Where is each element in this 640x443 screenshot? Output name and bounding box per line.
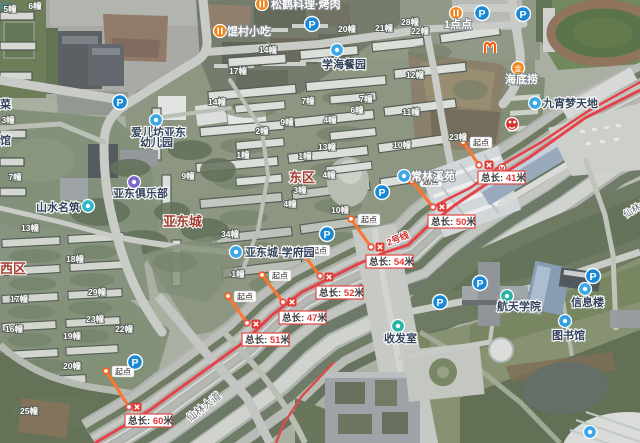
svg-text:29幢: 29幢 xyxy=(88,287,106,297)
svg-text:9幢: 9幢 xyxy=(181,171,195,181)
svg-text:金: 金 xyxy=(514,64,522,74)
svg-text:信息楼: 信息楼 xyxy=(571,295,604,309)
svg-text:航天学院: 航天学院 xyxy=(497,299,541,313)
svg-text:亚东城: 亚东城 xyxy=(163,214,202,229)
svg-text:10幢: 10幢 xyxy=(393,140,411,150)
svg-text:10幢: 10幢 xyxy=(331,205,349,215)
svg-text:23幢: 23幢 xyxy=(449,132,467,142)
svg-text:总长: 47米: 总长: 47米 xyxy=(282,312,327,324)
svg-text:P: P xyxy=(436,297,443,309)
svg-text:西区: 西区 xyxy=(0,261,26,276)
svg-text:7幢: 7幢 xyxy=(359,94,373,104)
svg-text:亚东俱乐部: 亚东俱乐部 xyxy=(113,186,168,200)
svg-text:菜: 菜 xyxy=(0,97,12,111)
svg-text:学海餐园: 学海餐园 xyxy=(322,57,366,71)
svg-text:14幢: 14幢 xyxy=(259,45,277,55)
svg-text:总长: 51米: 总长: 51米 xyxy=(245,334,290,346)
svg-text:6幢: 6幢 xyxy=(28,1,42,11)
svg-text:17幢: 17幢 xyxy=(10,294,28,304)
svg-text:1幢: 1幢 xyxy=(298,151,312,161)
svg-text:9幢: 9幢 xyxy=(280,117,294,127)
svg-text:4幢: 4幢 xyxy=(323,115,337,125)
svg-text:4幢: 4幢 xyxy=(283,199,297,209)
svg-text:20幢: 20幢 xyxy=(338,24,356,34)
svg-text:总长: 60米: 总长: 60米 xyxy=(128,415,173,427)
svg-text:起点: 起点 xyxy=(237,293,253,302)
svg-text:20幢: 20幢 xyxy=(63,361,81,371)
svg-text:P: P xyxy=(476,278,483,290)
svg-text:3幢: 3幢 xyxy=(293,185,307,195)
svg-text:12幢: 12幢 xyxy=(406,70,424,80)
svg-text:总长: 50米: 总长: 50米 xyxy=(431,216,476,228)
svg-text:海底捞: 海底捞 xyxy=(505,72,538,86)
svg-text:馄村小吃: 馄村小吃 xyxy=(226,24,271,38)
svg-text:P: P xyxy=(589,271,596,283)
svg-text:6幢: 6幢 xyxy=(350,105,364,115)
svg-text:P: P xyxy=(378,187,385,199)
svg-text:起点: 起点 xyxy=(361,216,377,225)
svg-text:16幢: 16幢 xyxy=(5,324,23,334)
svg-text:P: P xyxy=(478,8,485,20)
svg-text:25幢: 25幢 xyxy=(20,406,38,416)
svg-text:起点: 起点 xyxy=(473,139,489,148)
svg-text:总长: 41米: 总长: 41米 xyxy=(481,172,526,184)
svg-text:总长: 54米: 总长: 54米 xyxy=(369,256,414,268)
svg-text:14幢: 14幢 xyxy=(208,97,226,107)
svg-text:起点: 起点 xyxy=(272,272,288,281)
svg-text:起点: 起点 xyxy=(115,368,131,377)
svg-text:19幢: 19幢 xyxy=(63,331,81,341)
svg-text:4幢: 4幢 xyxy=(322,170,336,180)
svg-text:7幢: 7幢 xyxy=(8,172,22,182)
svg-text:11幢: 11幢 xyxy=(402,107,420,117)
svg-text:22幢: 22幢 xyxy=(411,26,429,36)
svg-text:1幢: 1幢 xyxy=(236,150,250,160)
svg-text:松鹤科理·烤肉: 松鹤科理·烤肉 xyxy=(271,0,341,11)
svg-text:幼儿园: 幼儿园 xyxy=(140,135,173,149)
svg-text:23幢: 23幢 xyxy=(86,314,104,324)
svg-text:图书馆: 图书馆 xyxy=(552,328,585,342)
svg-text:13幢: 13幢 xyxy=(318,142,336,152)
svg-text:收发室: 收发室 xyxy=(384,331,417,345)
svg-text:P: P xyxy=(116,97,123,109)
svg-text:5幢: 5幢 xyxy=(3,4,17,14)
svg-text:P: P xyxy=(519,9,526,21)
svg-text:17幢: 17幢 xyxy=(229,66,247,76)
svg-text:P: P xyxy=(308,19,315,31)
svg-text:亚东城-学府园: 亚东城-学府园 xyxy=(245,245,315,259)
svg-text:山水名筑: 山水名筑 xyxy=(36,200,80,214)
svg-text:1点点: 1点点 xyxy=(444,17,472,31)
svg-text:1幢: 1幢 xyxy=(231,269,245,279)
svg-text:34幢: 34幢 xyxy=(221,229,239,239)
svg-text:九宵梦天地: 九宵梦天地 xyxy=(542,96,598,110)
svg-text:P: P xyxy=(131,357,138,369)
svg-text:21幢: 21幢 xyxy=(375,23,393,33)
svg-text:13幢: 13幢 xyxy=(21,223,39,233)
svg-text:3幢: 3幢 xyxy=(1,115,15,125)
svg-text:P: P xyxy=(323,229,330,241)
svg-text:常林溪苑: 常林溪苑 xyxy=(411,169,455,183)
svg-text:22幢: 22幢 xyxy=(115,324,133,334)
svg-text:馆: 馆 xyxy=(0,133,11,147)
svg-text:18幢: 18幢 xyxy=(66,254,84,264)
svg-text:2幢: 2幢 xyxy=(255,126,269,136)
svg-text:东区: 东区 xyxy=(289,170,315,185)
svg-text:总长: 52米: 总长: 52米 xyxy=(319,287,364,299)
svg-text:7幢: 7幢 xyxy=(301,96,315,106)
